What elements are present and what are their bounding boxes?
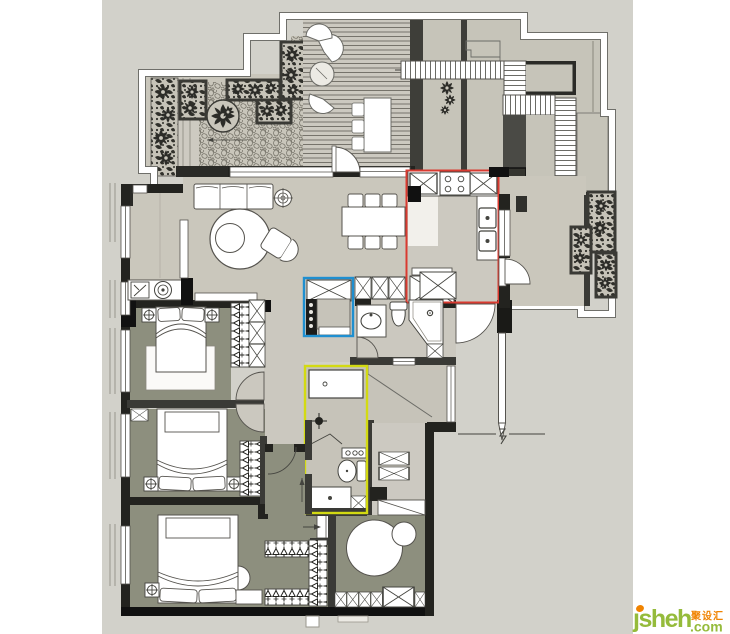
svg-text:.com: .com [690,619,723,634]
